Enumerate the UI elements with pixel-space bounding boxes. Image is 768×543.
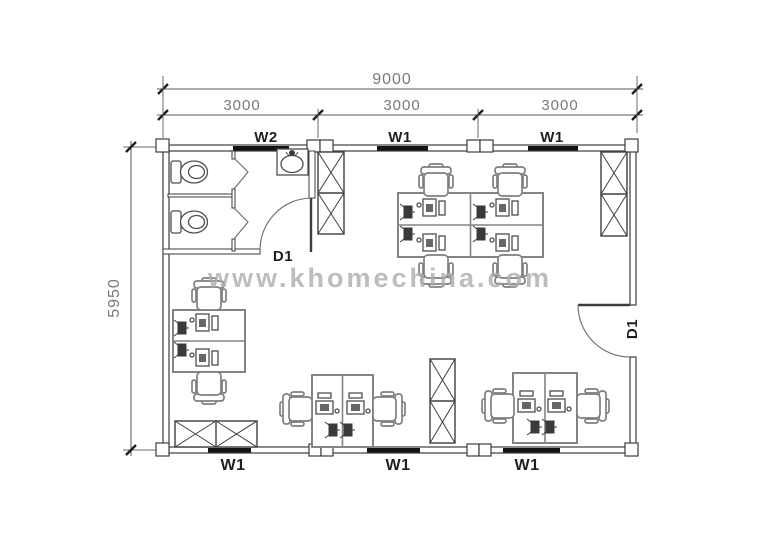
stall-front-wall-2 [232,189,235,208]
chair [192,372,226,404]
toilet-2 [171,211,208,233]
cabinet-bottom-middle [430,359,455,443]
post-joint-top-2a [467,140,480,152]
floor-plan-svg: 9000 3000 3000 3000 5950 W2 W1 W1 [0,0,768,543]
chair [419,164,453,196]
vestibule-wall [309,151,315,198]
window-label-w2: W2 [254,129,278,146]
dimension-total-height: 5950 [106,141,158,456]
stall-door-2 [234,208,248,239]
window-w1-bottom-center [367,448,420,453]
cabinet-bottom-left [175,421,257,447]
window-label-w1-bottom-center: W1 [386,457,411,474]
stall-front-wall-3 [232,239,235,251]
door-label-d1-right: D1 [624,319,641,339]
toilet-room-south-wall [163,249,260,254]
post-joint-top-1b [320,140,333,152]
window-w1-top-center [377,146,428,151]
window-w1-bottom-right [503,448,560,453]
sink [277,149,308,175]
dimension-bay-1-value: 3000 [223,97,260,114]
window-label-w1-top-right: W1 [540,129,564,146]
toilet-1 [171,161,208,183]
wall-right-upper [630,145,636,305]
stall-partition [168,194,233,197]
post-joint-top-1a [307,140,320,152]
wall-left [163,145,169,453]
door-d1-right [578,305,630,357]
post-corner-bottom-right [625,443,638,456]
dimension-total-height-value: 5950 [106,278,123,318]
dimension-total-width: 9000 [157,71,643,94]
chair [482,389,514,423]
window-label-w1-bottom-left: W1 [221,457,246,474]
desk-cluster-left [173,278,245,404]
chair [493,164,527,196]
dimension-total-width-value: 9000 [372,71,412,88]
window-w1-top-right [528,146,578,151]
desk-cluster-bottom-right [482,373,609,443]
wall-right-lower [630,357,636,453]
chair [280,392,312,426]
post-joint-bottom-2b [479,444,491,456]
post-corner-bottom-left [156,443,169,456]
cabinet-entry [318,152,344,234]
dimension-bay-3-value: 3000 [541,97,578,114]
door-d1-entry [260,198,311,252]
cabinet-top-right [601,152,627,236]
post-corner-top-right [625,139,638,152]
dimension-bays: 3000 3000 3000 [157,97,643,120]
window-label-w1-top-center: W1 [388,129,412,146]
window-label-w1-bottom-right: W1 [515,457,540,474]
chair [577,389,609,423]
chair [373,392,405,426]
post-joint-bottom-2a [467,444,479,456]
dimension-bay-2-value: 3000 [383,97,420,114]
watermark-text: www.khomechina.com [207,263,552,293]
desk-cluster-bottom-left [280,375,405,447]
floor-plan-page: 9000 3000 3000 3000 5950 W2 W1 W1 [0,0,768,543]
window-w1-bottom-left [208,448,251,453]
stall-door-1 [234,158,248,189]
post-corner-top-left [156,139,169,152]
post-joint-top-2b [480,140,493,152]
